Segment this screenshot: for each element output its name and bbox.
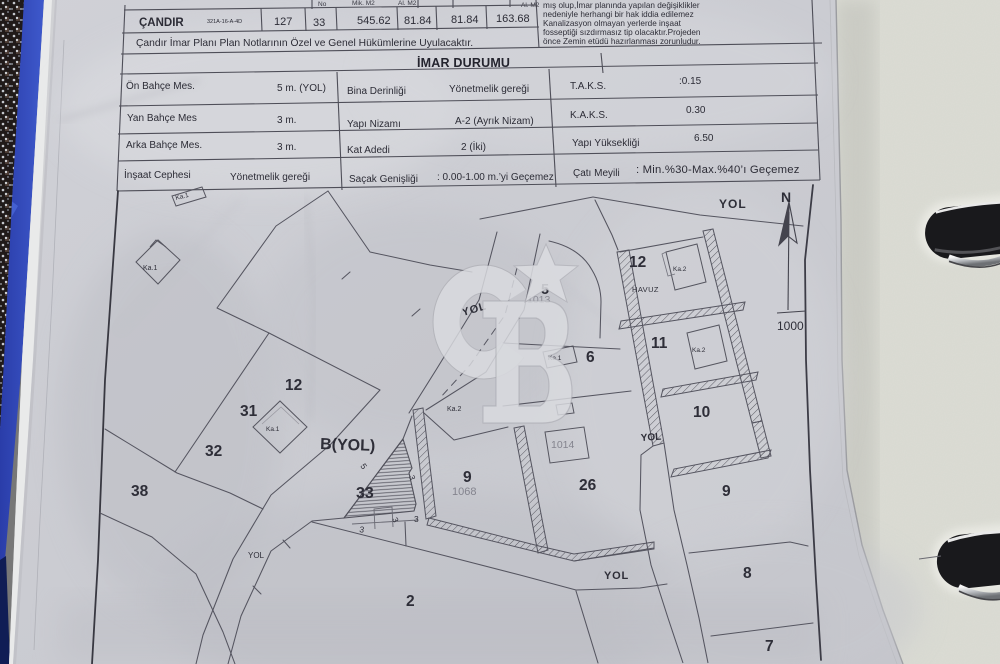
- svg-text:YOL: YOL: [248, 551, 265, 560]
- svg-text:Bina Derinliği: Bina Derinliği: [347, 86, 406, 97]
- svg-text:N: N: [781, 189, 791, 205]
- svg-text:HAVUZ: HAVUZ: [632, 285, 659, 294]
- svg-text:YOL: YOL: [719, 197, 747, 211]
- svg-text:127: 127: [274, 16, 292, 28]
- svg-text:K.A.K.S.: K.A.K.S.: [570, 110, 608, 121]
- svg-text:Yapı Nizamı: Yapı Nizamı: [347, 119, 401, 130]
- svg-text:B(YOL): B(YOL): [320, 436, 376, 455]
- svg-text:6: 6: [586, 349, 595, 366]
- svg-text:A-2 (Ayrık Nizam): A-2 (Ayrık Nizam): [455, 116, 534, 127]
- svg-text:Yapı Yüksekliği: Yapı Yüksekliği: [572, 138, 639, 149]
- svg-text:81.84: 81.84: [451, 14, 479, 26]
- svg-text:Arka Bahçe Mes.: Arka Bahçe Mes.: [126, 140, 202, 151]
- svg-text:12: 12: [285, 377, 302, 394]
- svg-text:Kanalizasyon olmayan yerlerde: Kanalizasyon olmayan yerlerde inşaat: [543, 19, 682, 28]
- svg-text:9: 9: [463, 469, 472, 486]
- svg-text:YOL: YOL: [604, 570, 629, 582]
- svg-text:Ka.2: Ka.2: [447, 406, 462, 413]
- svg-text:1014: 1014: [551, 439, 575, 451]
- svg-text:545.62: 545.62: [357, 15, 391, 27]
- svg-text:33: 33: [313, 17, 325, 29]
- svg-text:önce Zemin etüdü hazırlanması: önce Zemin etüdü hazırlanması zorunludur…: [543, 37, 700, 46]
- svg-text:32: 32: [205, 443, 222, 460]
- svg-text:81.84: 81.84: [404, 15, 432, 27]
- svg-text:Al. M2: Al. M2: [521, 2, 540, 9]
- svg-text:2: 2: [406, 593, 415, 610]
- svg-text:No: No: [318, 1, 327, 8]
- svg-text:1068: 1068: [452, 486, 476, 498]
- svg-text:3 m.: 3 m.: [277, 142, 296, 153]
- svg-text:T.A.K.S.: T.A.K.S.: [570, 81, 606, 92]
- svg-text:fosseptiği sızdırmasız tip ola: fosseptiği sızdırmasız tip olacaktır.Pro…: [543, 28, 701, 37]
- svg-text:Yönetmelik gereği: Yönetmelik gereği: [230, 172, 310, 183]
- svg-text:5 m. (YOL): 5 m. (YOL): [277, 83, 326, 94]
- svg-text:YOL: YOL: [640, 432, 661, 444]
- svg-text:: 0.00-1.00 m.’yi Geçemez: : 0.00-1.00 m.’yi Geçemez: [437, 172, 554, 183]
- svg-text:Çatı Meyili: Çatı Meyili: [573, 168, 620, 179]
- svg-text:Ka.1: Ka.1: [143, 265, 158, 272]
- svg-text:31: 31: [240, 403, 258, 420]
- svg-text:Ka.1: Ka.1: [266, 426, 280, 433]
- svg-text:8: 8: [743, 565, 752, 582]
- svg-text:İMAR DURUMU: İMAR DURUMU: [417, 55, 510, 70]
- svg-text:26: 26: [579, 477, 597, 494]
- svg-text::0.15: :0.15: [679, 76, 702, 87]
- svg-text:nedeniyle herhangi bir hak idd: nedeniyle herhangi bir hak iddia edileme…: [543, 10, 694, 19]
- svg-text:Ön Bahçe Mes.: Ön Bahçe Mes.: [126, 80, 195, 92]
- svg-text:1000: 1000: [777, 319, 804, 333]
- svg-text:6.50: 6.50: [694, 133, 714, 144]
- svg-text:Ka.2: Ka.2: [692, 347, 706, 354]
- svg-text:321A-16-A-4D: 321A-16-A-4D: [207, 19, 242, 25]
- svg-text:0.30: 0.30: [686, 105, 706, 116]
- svg-text:Yan Bahçe Mes: Yan Bahçe Mes: [127, 113, 197, 124]
- svg-text:Saçak Genişliği: Saçak Genişliği: [349, 174, 418, 185]
- svg-text:: Min.%30-Max.%40’ı Geçemez: : Min.%30-Max.%40’ı Geçemez: [636, 164, 800, 176]
- svg-text:3 m.: 3 m.: [277, 115, 296, 126]
- svg-text:12: 12: [629, 254, 646, 271]
- svg-text:Yönetmelik gereği: Yönetmelik gereği: [449, 84, 529, 95]
- svg-text:Mik. M2: Mik. M2: [352, 0, 375, 7]
- svg-text:Kat Adedi: Kat Adedi: [347, 145, 390, 156]
- svg-text:10: 10: [693, 404, 710, 421]
- svg-text:Al. M2: Al. M2: [398, 0, 417, 7]
- svg-text:11: 11: [651, 335, 668, 352]
- svg-text:38: 38: [131, 483, 149, 500]
- svg-text:163.68: 163.68: [496, 13, 530, 25]
- svg-text:9: 9: [722, 483, 731, 500]
- svg-text:Ka.2: Ka.2: [673, 266, 687, 273]
- svg-text:2 (İki): 2 (İki): [461, 140, 486, 153]
- svg-text:7: 7: [765, 638, 774, 655]
- svg-text:Çandır İmar Planı Plan Notları: Çandır İmar Planı Plan Notlarının Özel v…: [136, 36, 473, 49]
- svg-text:mış olup,İmar planında yapılan: mış olup,İmar planında yapılan değişikli…: [543, 0, 700, 10]
- svg-text:İnşaat Cephesi: İnşaat Cephesi: [124, 168, 191, 181]
- svg-text:ÇANDIR: ÇANDIR: [139, 17, 184, 29]
- svg-text:3: 3: [414, 514, 419, 524]
- svg-text:33: 33: [356, 485, 374, 502]
